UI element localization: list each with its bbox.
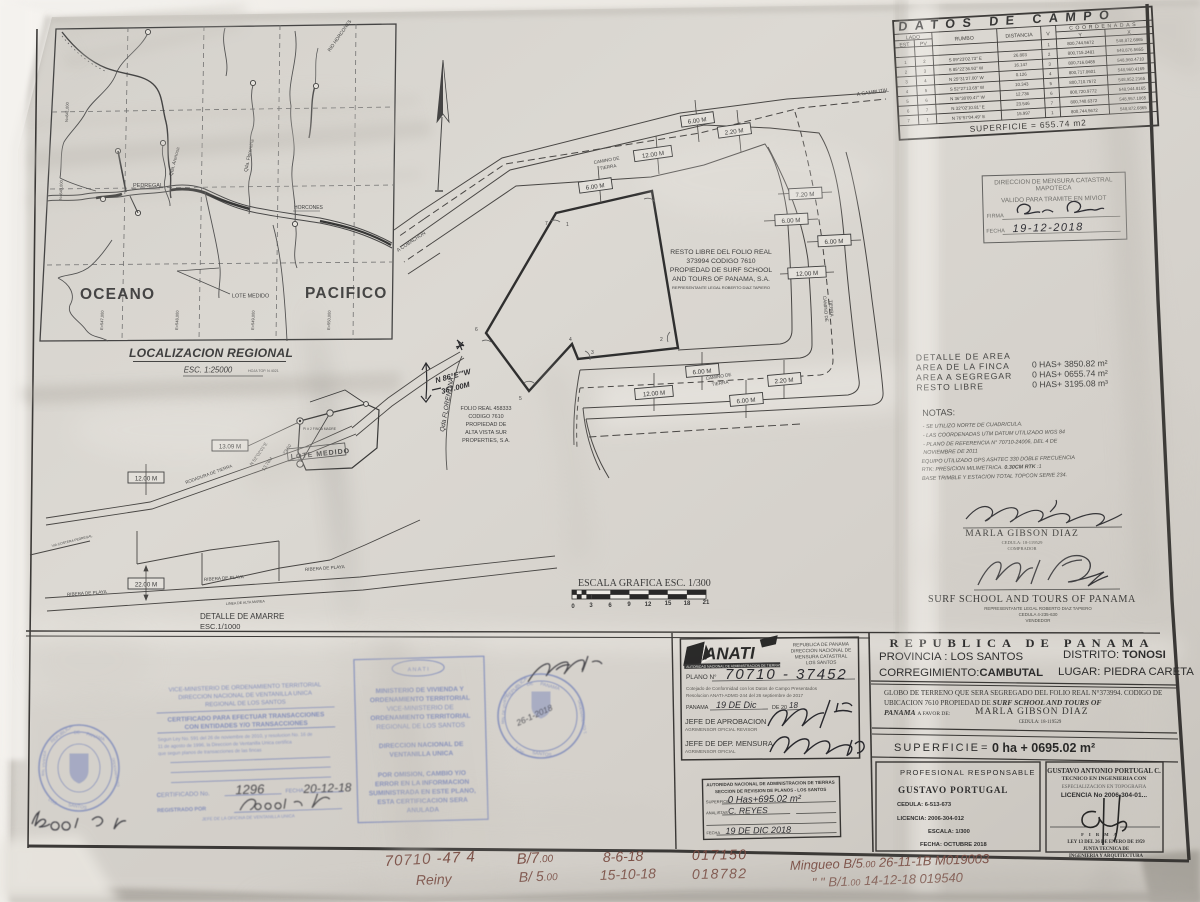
svg-text:FECHA: OCTUBRE 2018: FECHA: OCTUBRE 2018 (920, 842, 987, 848)
svg-text:16.147: 16.147 (1014, 62, 1028, 68)
svg-text:ORDENAMIENTO TERRITORIAL: ORDENAMIENTO TERRITORIAL (370, 713, 470, 723)
svg-text:MENSURA CATASTRAL: MENSURA CATASTRAL (795, 654, 848, 661)
svg-text:S 85°22'36.93" W: S 85°22'36.93" W (949, 65, 984, 72)
svg-text:Y: Y (1078, 32, 1082, 38)
svg-text:PV: PV (920, 41, 928, 47)
svg-text:18: 18 (789, 701, 798, 710)
svg-text:S 52°27'13.69" W: S 52°27'13.69" W (950, 85, 985, 92)
svg-text:JEFE DE APROBACION: JEFE DE APROBACION (685, 717, 766, 726)
svg-text:12: 12 (645, 602, 652, 608)
svg-text:9: 9 (627, 602, 631, 608)
svg-text:ESC.1/1000: ESC.1/1000 (200, 622, 240, 631)
svg-text:10.343: 10.343 (1015, 81, 1029, 87)
svg-text:SUPERFICIE = 655.74 m2: SUPERFICIE = 655.74 m2 (969, 117, 1086, 134)
svg-text:15: 15 (665, 601, 672, 607)
svg-text:F I R M A: F I R M A (1081, 832, 1119, 837)
svg-text:- SE UTILIZO NORTE DE CUADRICU: - SE UTILIZO NORTE DE CUADRICULA. (923, 421, 1023, 430)
svg-text:POR OMISION, CAMBIO Y/O: POR OMISION, CAMBIO Y/O (378, 770, 466, 779)
svg-text:7: 7 (907, 118, 910, 123)
svg-text:N 32°02'10.81" E: N 32°02'10.81" E (951, 104, 985, 111)
svg-text:CEDULA: 6-513-673: CEDULA: 6-513-673 (897, 802, 952, 808)
svg-text:RTK: PRESICION MILIMETRICA. 0.: RTK: PRESICION MILIMETRICA. 0.30CM RTK :… (922, 464, 1042, 473)
svg-text:TIERRA: TIERRA (599, 163, 617, 171)
svg-text:5: 5 (925, 88, 928, 93)
svg-text:6: 6 (1050, 91, 1053, 96)
svg-text:LUGAR: PIEDRA CARETA: LUGAR: PIEDRA CARETA (1058, 666, 1194, 678)
svg-text:LICENCIA: 2006-304-012: LICENCIA: 2006-304-012 (897, 816, 964, 822)
svg-text:LEY 13 DEL 26 DE ENERO DE 1959: LEY 13 DEL 26 DE ENERO DE 1959 (1067, 840, 1145, 845)
svg-text:1: 1 (1051, 110, 1054, 115)
svg-text:LADO: LADO (906, 35, 920, 42)
svg-text:ANATI: ANATI (703, 644, 756, 664)
svg-text:800,717.0601: 800,717.0601 (1069, 69, 1097, 76)
svg-text:21: 21 (703, 600, 710, 606)
svg-text:N 36°38'09.47" W: N 36°38'09.47" W (950, 94, 986, 101)
svg-text:FECHA: FECHA (706, 830, 720, 835)
svg-text:6: 6 (925, 98, 928, 103)
svg-text:Reiny: Reiny (416, 871, 453, 888)
svg-text:MAPOTECA: MAPOTECA (1035, 185, 1072, 193)
svg-text:DIRECCION NACIONAL DE: DIRECCION NACIONAL DE (379, 741, 464, 750)
svg-text:800,744.5672: 800,744.5672 (1071, 108, 1099, 115)
svg-text:LOTE MEDIDO: LOTE MEDIDO (232, 294, 269, 300)
svg-text:HORCONES: HORCONES (294, 205, 324, 211)
svg-text:800,744.5672: 800,744.5672 (1067, 40, 1095, 47)
svg-text:ESPECIALIZACION EN TOPOGRAFI: ESPECIALIZACION EN TOPOGRAFIA (1062, 785, 1147, 790)
svg-text:ANULADA: ANULADA (406, 807, 439, 815)
svg-text:1: 1 (1047, 42, 1050, 47)
svg-text:LOTE MEDIDO: LOTE MEDIDO (290, 448, 350, 461)
svg-text:TIERRA: TIERRA (711, 379, 729, 387)
svg-text:VICE-MINISTERIO DE: VICE-MINISTERIO DE (387, 704, 455, 713)
svg-text:ESC. 1:25000: ESC. 1:25000 (184, 366, 233, 375)
svg-text:3: 3 (924, 69, 927, 74)
svg-text:548,952.2165: 548,952.2165 (1118, 76, 1146, 83)
svg-text:ESCALA GRAFICA ESC. 1/300: ESCALA GRAFICA ESC. 1/300 (578, 578, 711, 589)
svg-text:RIBERA DE PLAYA: RIBERA DE PLAYA (305, 564, 346, 572)
svg-text:548,872.6865: 548,872.6865 (1120, 105, 1148, 112)
svg-text:E=549,000: E=549,000 (250, 310, 256, 330)
svg-text:FOLIO REAL 458333: FOLIO REAL 458333 (460, 406, 511, 412)
svg-text:0 HAS+ 3195.08 m³: 0 HAS+ 3195.08 m³ (1032, 378, 1108, 389)
svg-text:TECNICO EN INGENIERIA CON: TECNICO EN INGENIERIA CON (1062, 776, 1147, 782)
svg-text:800,740.6372: 800,740.6372 (1070, 98, 1098, 105)
svg-text:SUPERFICIE: SUPERFICIE (894, 742, 980, 754)
svg-text:SURF SCHOOL AND TOURS OF PANAM: SURF SCHOOL AND TOURS OF PANAMA (928, 594, 1136, 605)
svg-text:0: 0 (571, 604, 575, 610)
svg-text:AGRIMENSOR OFICIAL: AGRIMENSOR OFICIAL (685, 749, 736, 754)
svg-text:PANAMA: PANAMA (686, 705, 709, 711)
svg-text:REPRESENTANTE LEGAL ROBERTO DI: REPRESENTANTE LEGAL ROBERTO DIAZ TAPIERO (984, 606, 1092, 611)
svg-text:13.09 M: 13.09 M (219, 444, 241, 451)
svg-text:19 DE Dic: 19 DE Dic (716, 700, 757, 710)
svg-text:4: 4 (906, 89, 909, 94)
svg-text:6: 6 (475, 327, 478, 333)
svg-text:017150: 017150 (692, 846, 748, 863)
svg-text:548,872.6865: 548,872.6865 (1116, 37, 1144, 44)
svg-text:12.736: 12.736 (1015, 91, 1029, 97)
svg-text:DISTRITO: TONOSI: DISTRITO: TONOSI (1063, 649, 1166, 661)
svg-text:Cotejado de Conformidad con lo: Cotejado de Conformidad con los Datos de… (686, 686, 818, 691)
svg-text:VENDEDOR: VENDEDOR (1026, 618, 1051, 623)
svg-text:REPUBLICA DE PANAMA: REPUBLICA DE PANAMA (890, 637, 1155, 650)
svg-text:LICENCIA No 2006-304-01...: LICENCIA No 2006-304-01... (1061, 792, 1147, 799)
svg-text:5: 5 (519, 396, 522, 402)
svg-text:BASE TRIMBLE Y ESTACION TOTAL: BASE TRIMBLE Y ESTACION TOTAL TOPCON SER… (922, 472, 1067, 482)
svg-text:FIRMA: FIRMA (987, 213, 1005, 219)
svg-text:18: 18 (684, 601, 691, 607)
svg-text:MARLA GIBSON DIAZ: MARLA GIBSON DIAZ (975, 707, 1089, 717)
svg-text:JUNTA TECNICA DE: JUNTA TECNICA DE (1083, 847, 1129, 852)
svg-text:800,710.7572: 800,710.7572 (1069, 79, 1097, 86)
svg-text:Resolucion ANATI-ADMG-244 del: Resolucion ANATI-ADMG-244 del 26 septiem… (686, 693, 804, 698)
svg-text:ESCALA: 1/300: ESCALA: 1/300 (928, 829, 970, 835)
svg-text:8-6-18: 8-6-18 (603, 848, 644, 865)
svg-text:OCEANO: OCEANO (80, 286, 155, 303)
svg-text:0 ha + 0695.02 m²: 0 ha + 0695.02 m² (992, 741, 1095, 755)
svg-text:A N A T I: A N A T I (407, 667, 429, 674)
svg-text:N=840,000: N=840,000 (58, 179, 64, 200)
svg-text:ERROR EN LA INFORMACION: ERROR EN LA INFORMACION (375, 779, 470, 788)
svg-text:70710 -47 4: 70710 -47 4 (384, 848, 476, 870)
svg-text:RIO HORCONES: RIO HORCONES (327, 19, 353, 53)
svg-text:548,960.4710: 548,960.4710 (1117, 56, 1145, 63)
svg-text:JEFE DE DEP. MENSURA: JEFE DE DEP. MENSURA (685, 739, 773, 748)
svg-text:N 25°31'27.00" W: N 25°31'27.00" W (949, 75, 985, 82)
svg-text:2: 2 (1048, 52, 1051, 57)
svg-text:13.76M: 13.76M (261, 456, 274, 472)
svg-text:VALIDO PARA TRAMITE EN MIVIOT: VALIDO PARA TRAMITE EN MIVIOT (1001, 195, 1107, 205)
svg-text:6: 6 (608, 603, 612, 609)
svg-text:N=841,000: N=841,000 (64, 101, 70, 122)
svg-text:018782: 018782 (692, 865, 748, 882)
svg-text:REPRESENTANTE LEGAL ROBERTO DI: REPRESENTANTE LEGAL ROBERTO DIAZ TAPIERO (672, 285, 770, 290)
svg-text:7: 7 (545, 221, 548, 227)
svg-text:5: 5 (1049, 81, 1052, 86)
svg-text:GUSTAVO ANTONIO PORTUGAL C.: GUSTAVO ANTONIO PORTUGAL C. (1047, 768, 1161, 775)
svg-text:MIN. DE VIVIENDA: MIN. DE VIVIENDA (501, 690, 508, 724)
svg-text:1296: 1296 (235, 781, 265, 797)
svg-text:5: 5 (906, 99, 909, 104)
svg-text:800,720.9772: 800,720.9772 (1070, 88, 1098, 95)
svg-text:3: 3 (905, 79, 908, 84)
svg-text:C. REYES: C. REYES (728, 805, 768, 816)
svg-text:A CAMBUTAL: A CAMBUTAL (856, 88, 889, 98)
svg-text:EST: EST (899, 42, 910, 49)
svg-text:DIRECCION NACIONAL DE: DIRECCION NACIONAL DE (791, 647, 852, 654)
svg-text:PROPERTIES, S.A.: PROPERTIES, S.A. (462, 438, 510, 444)
svg-text:RUMBO: RUMBO (954, 36, 974, 43)
svg-text:PROFESIONAL RESPONSABLE: PROFESIONAL RESPONSABLE (900, 768, 1035, 777)
svg-text:N 76°57'04.49" E: N 76°57'04.49" E (952, 114, 986, 121)
svg-text:1: 1 (926, 117, 929, 122)
svg-text:20-12-18: 20-12-18 (302, 780, 352, 796)
svg-text:373994 CODIGO 7610: 373994 CODIGO 7610 (686, 258, 755, 265)
svg-text:V: V (1046, 31, 1050, 37)
svg-text:REGISTRADO POR: REGISTRADO POR (157, 806, 206, 814)
svg-text:RIBERA DE PLAYA: RIBERA DE PLAYA (204, 574, 245, 582)
svg-text:2: 2 (905, 70, 908, 75)
svg-text:3: 3 (1048, 62, 1051, 67)
svg-text:REPUBLICA DE PANAMA: REPUBLICA DE PANAMA (793, 641, 850, 648)
svg-text:INGENIERIA Y ARQUITECTURA: INGENIERIA Y ARQUITECTURA (1069, 854, 1144, 859)
svg-text:A COBACHON: A COBACHON (396, 230, 428, 253)
svg-text:19 DE DIC 2018: 19 DE DIC 2018 (725, 825, 791, 836)
svg-text:ALTA VISTA SUR: ALTA VISTA SUR (465, 430, 507, 436)
svg-text:4: 4 (1049, 71, 1052, 76)
svg-text:PEDREGAL: PEDREGAL (133, 183, 163, 189)
svg-text:15.997: 15.997 (1017, 110, 1031, 116)
svg-text:GUSTAVO PORTUGAL: GUSTAVO PORTUGAL (898, 785, 1008, 795)
svg-text:7.20 M: 7.20 M (795, 191, 814, 199)
svg-text:548,957.1065: 548,957.1065 (1119, 95, 1147, 102)
svg-text:CEDULA 4-235-630: CEDULA 4-235-630 (1019, 612, 1058, 617)
svg-text:800,716.8485: 800,716.8485 (1068, 59, 1096, 66)
svg-text:HOJA TOP. N 4021: HOJA TOP. N 4021 (248, 369, 279, 373)
svg-text:CORREGIMIENTO:CAMBUTAL: CORREGIMIENTO:CAMBUTAL (879, 667, 1043, 679)
svg-text:548,876.5655: 548,876.5655 (1116, 47, 1144, 54)
svg-text:PI # 2 FINCA MADRE: PI # 2 FINCA MADRE (303, 427, 337, 431)
svg-text:E=547,000: E=547,000 (99, 310, 105, 330)
svg-text:SUMINISTRADA EN ESTE PLANO,: SUMINISTRADA EN ESTE PLANO, (369, 788, 476, 798)
svg-text:CERTIFICADO No.: CERTIFICADO No. (156, 790, 210, 799)
svg-text:PANAMA: PANAMA (539, 681, 561, 692)
svg-text:4: 4 (924, 78, 927, 83)
svg-text:COMPRADOR: COMPRADOR (1007, 546, 1037, 551)
svg-text:MINISTERIO DE VIVIENDA Y: MINISTERIO DE VIVIENDA Y (375, 686, 464, 695)
svg-text:AND TOURS OF PANAMA, S.A.: AND TOURS OF PANAMA, S.A. (672, 276, 770, 283)
svg-text:548,960.4169: 548,960.4169 (1118, 66, 1146, 73)
svg-text:PLANO N°: PLANO N° (686, 673, 717, 681)
svg-text:MARLA GIBSON DIAZ: MARLA GIBSON DIAZ (965, 529, 1079, 539)
svg-text:2: 2 (660, 337, 663, 343)
svg-text:NOVIEMBRE DE 2011: NOVIEMBRE DE 2011 (923, 449, 978, 456)
svg-text:6.00 M: 6.00 M (781, 217, 800, 225)
svg-text:PANAMA A FAVOR DE:: PANAMA A FAVOR DE: (884, 708, 951, 717)
svg-text:1: 1 (566, 222, 569, 228)
svg-text:Qda. Arenosa: Qda. Arenosa (168, 146, 181, 176)
svg-text:CEDULA: 18-119529: CEDULA: 18-119529 (1002, 540, 1043, 545)
svg-text:2: 2 (923, 59, 926, 64)
svg-text:548,944.8165: 548,944.8165 (1119, 85, 1147, 92)
svg-text:FECHA: FECHA (986, 228, 1005, 234)
svg-text:3: 3 (591, 350, 594, 356)
svg-text:ORDENAMIENTO TERRITORIAL: ORDENAMIENTO TERRITORIAL (370, 695, 470, 705)
svg-text:7: 7 (1051, 100, 1054, 105)
svg-text:70710 - 37452: 70710 - 37452 (725, 666, 848, 683)
svg-text:B/ 5.00: B/ 5.00 (518, 867, 558, 885)
svg-text:=: = (981, 742, 987, 754)
svg-text:DETALLE DE AMARRE: DETALLE DE AMARRE (200, 612, 284, 621)
svg-text:DISTANCIA: DISTANCIA (1005, 32, 1033, 40)
svg-text:LINEA DE ALTA MAREA: LINEA DE ALTA MAREA (226, 599, 266, 606)
svg-text:RIBERA DE PLAYA: RIBERA DE PLAYA (67, 589, 108, 597)
svg-text:NOTAS:: NOTAS: (922, 407, 955, 418)
svg-text:GLOBO DE TERRENO QUE SERA SEGR: GLOBO DE TERRENO QUE SERA SEGREGADO DEL … (884, 689, 1162, 697)
svg-text:1: 1 (904, 60, 907, 65)
svg-text:SUPERFICIE: SUPERFICIE (706, 799, 730, 805)
svg-text:7: 7 (926, 107, 929, 112)
svg-text:UBICACION 7610 PROPIEDAD DE S: UBICACION 7610 PROPIEDAD DE SURF SCHOOL … (884, 698, 1101, 707)
svg-text:JEFE DE LA OFICINA DE VENTANIL: JEFE DE LA OFICINA DE VENTANILLA UNICA (202, 813, 295, 821)
svg-text:12.00 M: 12.00 M (796, 270, 819, 278)
svg-text:CEDULA: 18-119529: CEDULA: 18-119529 (1019, 720, 1062, 725)
svg-text:0 Has+695.02 m²: 0 Has+695.02 m² (728, 793, 802, 806)
svg-text:X: X (1127, 30, 1131, 36)
svg-text:ANALISTAS: ANALISTAS (706, 810, 728, 815)
svg-text:EQUIPO UTILIZADO GPS ASHTEC 33: EQUIPO UTILIZADO GPS ASHTEC 330 DOBLE FR… (921, 455, 1075, 465)
svg-text:DE: DE (526, 681, 534, 688)
svg-text:ESTA CERTIFICACION SERA: ESTA CERTIFICACION SERA (377, 797, 468, 806)
svg-text:FECHA: FECHA (285, 788, 304, 795)
svg-text:0.126: 0.126 (1016, 72, 1028, 78)
svg-text:3: 3 (589, 603, 593, 609)
svg-text:AGRIMENSOR OFICIAL REVISOR: AGRIMENSOR OFICIAL REVISOR (685, 727, 758, 732)
svg-text:LOCALIZACION REGIONAL: LOCALIZACION REGIONAL (129, 346, 293, 360)
svg-text:- LAS COORDENADAS UTM DATUM UT: - LAS COORDENADAS UTM DATUM UTILIZADO WG… (923, 429, 1065, 439)
svg-text:PACIFICO: PACIFICO (305, 285, 388, 302)
svg-text:LOS: LOS (47, 797, 57, 806)
svg-text:4: 4 (569, 337, 572, 343)
svg-text:" " B/1.00 14-12-18 01954: " " B/1.00 14-12-18 019540 (812, 870, 964, 890)
svg-text:VIA COSTERA PEDREGAL: VIA COSTERA PEDREGAL (51, 534, 93, 548)
svg-text:Qda. Florentina: Qda. Florentina (243, 139, 256, 173)
svg-text:VENTANILLA UNICA: VENTANILLA UNICA (389, 750, 453, 759)
svg-text:REGIONAL DE LOS SANTOS: REGIONAL DE LOS SANTOS (376, 722, 465, 731)
svg-text:E=548,000: E=548,000 (174, 310, 180, 330)
svg-text:E=550,000: E=550,000 (326, 310, 332, 330)
svg-text:REGIONAL DE LOS SANTOS: REGIONAL DE LOS SANTOS (205, 700, 286, 709)
svg-text:S 09°23'02.73" E: S 09°23'02.73" E (949, 56, 983, 63)
svg-text:PROVINCIA : LOS SANTOS: PROVINCIA : LOS SANTOS (879, 651, 1024, 663)
svg-text:CODIGO 7610: CODIGO 7610 (468, 414, 503, 420)
svg-text:19-12-2018: 19-12-2018 (1012, 221, 1084, 235)
svg-text:PROPIEDAD DE SURF SCHOOL: PROPIEDAD DE SURF SCHOOL (670, 267, 773, 274)
svg-text:800,715.2481: 800,715.2481 (1068, 49, 1096, 56)
svg-text:6: 6 (907, 109, 910, 114)
svg-text:23.546: 23.546 (1016, 101, 1030, 107)
svg-text:RESTO LIBRE: RESTO LIBRE (916, 381, 984, 392)
svg-text:15-10-18: 15-10-18 (600, 865, 657, 883)
svg-text:PROPIEDAD DE: PROPIEDAD DE (466, 422, 507, 428)
svg-text:RESTO LIBRE DEL FOLIO REAL: RESTO LIBRE DEL FOLIO REAL (670, 249, 772, 256)
svg-text:6.00 M: 6.00 M (824, 238, 843, 246)
svg-text:DE: DE (74, 729, 81, 735)
svg-text:26.803: 26.803 (1013, 52, 1027, 58)
svg-text:- PLANO DE REFERENCIA N° 70710: - PLANO DE REFERENCIA N° 70710-24006, DE… (923, 438, 1058, 448)
